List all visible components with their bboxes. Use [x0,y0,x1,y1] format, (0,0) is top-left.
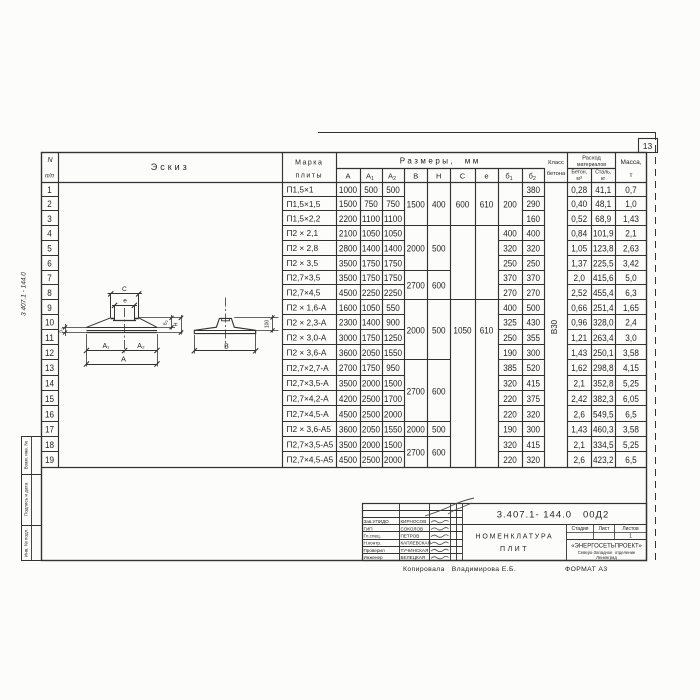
svg-text:15: 15 [45,394,54,404]
svg-text:2000: 2000 [384,409,402,419]
svg-text:123,8: 123,8 [593,244,614,254]
svg-text:1550: 1550 [384,348,402,358]
svg-text:2700: 2700 [407,281,425,291]
svg-text:2000: 2000 [362,379,380,389]
svg-text:11: 11 [45,333,54,343]
svg-text:220: 220 [503,455,517,465]
svg-text:6,3: 6,3 [625,288,636,298]
svg-text:Гл.спец.: Гл.спец. [364,534,381,539]
svg-text:320: 320 [526,409,540,419]
svg-text:325: 325 [503,318,517,328]
svg-text:П2,7×3,5: П2,7×3,5 [287,273,321,283]
svg-text:200: 200 [503,200,517,210]
svg-text:0,40: 0,40 [571,199,587,209]
svg-text:3600: 3600 [339,348,357,358]
svg-text:950: 950 [386,363,400,373]
svg-text:2800: 2800 [339,244,357,254]
svg-text:500: 500 [386,185,400,195]
svg-text:250,1: 250,1 [593,348,614,358]
svg-text:68,9: 68,9 [595,214,611,224]
svg-text:4500: 4500 [339,455,357,465]
svg-text:2,52: 2,52 [571,288,587,298]
svg-text:4: 4 [47,229,52,239]
svg-text:7: 7 [47,273,52,283]
svg-text:П2,7×3,5-А: П2,7×3,5-А [287,378,330,388]
svg-text:1750: 1750 [362,273,380,283]
svg-text:290: 290 [526,199,540,209]
svg-text:3600: 3600 [339,425,357,435]
svg-text:48,1: 48,1 [595,199,611,209]
svg-text:320: 320 [526,455,540,465]
svg-text:А: А [121,355,126,364]
svg-text:382,3: 382,3 [593,394,614,404]
svg-text:1500: 1500 [407,200,425,210]
svg-text:Ленинград: Ленинград [596,555,617,560]
svg-text:П2,7×4,2-А: П2,7×4,2-А [287,393,330,403]
svg-text:500: 500 [432,244,446,254]
svg-text:298,8: 298,8 [593,363,614,373]
svg-text:3.407.1- 144.0 00Д2: 3.407.1- 144.0 00Д2 [497,510,609,521]
svg-text:1: 1 [629,534,632,540]
svg-text:п/п: п/п [45,173,54,180]
svg-text:4500: 4500 [339,288,357,298]
svg-text:12: 12 [45,348,54,358]
svg-text:2000: 2000 [407,425,425,435]
svg-text:6,05: 6,05 [623,394,639,404]
svg-text:334,5: 334,5 [593,440,614,450]
svg-text:П2 × 3,6-А5: П2 × 3,6-А5 [287,424,332,434]
svg-text:1,65: 1,65 [623,303,639,313]
svg-text:ПЕТРОВ: ПЕТРОВ [401,534,420,539]
svg-text:430: 430 [526,318,540,328]
svg-text:400: 400 [526,229,540,239]
svg-text:2500: 2500 [362,455,380,465]
svg-text:2000: 2000 [384,455,402,465]
svg-text:2000: 2000 [407,244,425,254]
svg-text:Марка: Марка [295,160,323,167]
svg-text:600: 600 [432,386,446,396]
svg-text:600: 600 [432,448,446,458]
svg-text:1500: 1500 [339,199,357,209]
svg-text:1,62: 1,62 [571,363,587,373]
svg-text:1500: 1500 [384,440,402,450]
svg-text:2250: 2250 [384,288,402,298]
svg-text:П2 × 3,5: П2 × 3,5 [287,258,319,268]
svg-text:3,58: 3,58 [623,348,639,358]
svg-text:225,5: 225,5 [593,258,614,268]
svg-text:2100: 2100 [339,229,357,239]
svg-text:320: 320 [503,379,517,389]
svg-text:Инженер: Инженер [364,555,384,560]
svg-text:1100: 1100 [362,214,380,224]
svg-text:Лист: Лист [599,526,611,532]
svg-text:455,4: 455,4 [593,288,614,298]
svg-text:2,63: 2,63 [623,244,639,254]
svg-text:270: 270 [526,288,540,298]
svg-text:А₁: А₁ [102,343,110,350]
svg-text:ПЛИТ: ПЛИТ [500,546,529,553]
svg-text:8: 8 [47,288,52,298]
svg-text:ТУЧИНСКАЯ: ТУЧИНСКАЯ [401,548,429,553]
svg-text:2700: 2700 [339,363,357,373]
svg-text:2250: 2250 [362,288,380,298]
svg-text:190: 190 [503,348,517,358]
svg-text:1,05: 1,05 [571,244,587,254]
svg-text:т: т [630,172,633,179]
svg-text:3,58: 3,58 [623,425,639,435]
svg-text:16: 16 [45,409,54,419]
svg-text:С: С [460,172,466,181]
svg-text:П2 × 2,1: П2 × 2,1 [287,228,319,238]
svg-text:4500: 4500 [339,409,357,419]
svg-text:Расход: Расход [582,156,601,162]
svg-text:1: 1 [47,185,52,195]
svg-text:750: 750 [386,199,400,209]
svg-text:1750: 1750 [362,258,380,268]
svg-text:3500: 3500 [339,258,357,268]
svg-text:2,1: 2,1 [574,440,585,450]
svg-text:415,6: 415,6 [593,273,614,283]
svg-text:1750: 1750 [362,333,380,343]
svg-text:1700: 1700 [384,394,402,404]
svg-text:Копировала Владимирова Е.Б.: Копировала Владимирова Е.Б. [403,566,516,573]
svg-text:3: 3 [47,214,52,224]
svg-text:1250: 1250 [384,333,402,343]
svg-text:220: 220 [503,394,517,404]
svg-text:Н.контр.: Н.контр. [364,541,382,546]
svg-text:Зав.УПИДО: Зав.УПИДО [364,519,390,524]
svg-text:П2,7×4,5: П2,7×4,5 [287,288,321,298]
svg-text:0,84: 0,84 [571,229,587,239]
svg-text:2500: 2500 [362,409,380,419]
svg-text:900: 900 [386,318,400,328]
svg-text:250: 250 [503,258,517,268]
svg-text:материалов: материалов [577,162,606,168]
svg-text:В: В [413,172,418,181]
svg-text:300: 300 [526,348,540,358]
svg-text:П2,7×4,5-А5: П2,7×4,5-А5 [287,455,334,465]
svg-text:1,37: 1,37 [571,258,587,268]
svg-text:1600: 1600 [339,303,357,313]
svg-text:10: 10 [45,318,54,328]
svg-text:2: 2 [47,199,52,209]
svg-text:е: е [123,298,127,305]
svg-text:4200: 4200 [339,394,357,404]
svg-text:460,3: 460,3 [593,425,614,435]
svg-text:С: С [122,286,127,293]
svg-text:В: В [224,343,229,350]
svg-text:250: 250 [526,258,540,268]
svg-text:ФОРМАТ А3: ФОРМАТ А3 [565,566,608,573]
svg-text:13: 13 [45,363,54,373]
svg-text:1400: 1400 [384,244,402,254]
svg-text:415: 415 [526,440,540,450]
svg-text:423,2: 423,2 [593,455,614,465]
svg-text:Н: Н [174,322,180,326]
svg-text:250: 250 [503,333,517,343]
svg-text:П2 × 1,6-А: П2 × 1,6-А [287,302,327,312]
svg-text:П2,7×2,7-А: П2,7×2,7-А [287,363,330,373]
svg-text:П2,7×4,5-А: П2,7×4,5-А [287,409,330,419]
svg-text:5: 5 [47,244,52,254]
svg-text:«ЭНЕРГОСЕТЬПРОЕКТ»: «ЭНЕРГОСЕТЬПРОЕКТ» [571,544,642,550]
svg-text:100: 100 [264,320,270,329]
svg-text:2,0: 2,0 [574,273,585,283]
svg-text:1050: 1050 [384,229,402,239]
svg-text:263,4: 263,4 [593,333,614,343]
svg-text:1750: 1750 [384,273,402,283]
svg-text:1500: 1500 [384,379,402,389]
svg-text:6,5: 6,5 [625,409,636,419]
svg-text:400: 400 [503,303,517,313]
svg-text:ГИП: ГИП [364,526,373,531]
svg-text:415: 415 [526,379,540,389]
svg-text:3000: 3000 [339,333,357,343]
svg-text:Размеры, мм: Размеры, мм [400,157,481,166]
svg-text:1750: 1750 [362,363,380,373]
svg-text:2,6: 2,6 [574,409,585,419]
svg-text:НОМЕНКЛАТУРА: НОМЕНКЛАТУРА [475,534,553,541]
svg-text:Н: Н [436,172,441,181]
svg-text:3,42: 3,42 [623,258,639,268]
svg-text:2,4: 2,4 [625,318,636,328]
svg-text:Подпись и дата: Подпись и дата [24,483,29,516]
svg-text:П2 × 2,3-А: П2 × 2,3-А [287,317,327,327]
svg-text:1750: 1750 [384,258,402,268]
svg-text:520: 520 [526,363,540,373]
svg-text:160: 160 [526,214,540,224]
svg-text:Проверил: Проверил [364,548,385,553]
svg-text:БЕЛЕЦКАЯ: БЕЛЕЦКАЯ [401,555,426,560]
svg-text:1050: 1050 [453,326,471,336]
svg-text:КАПЛЕВСКАЯ: КАПЛЕВСКАЯ [401,541,431,546]
svg-text:2000: 2000 [407,326,425,336]
svg-text:1000: 1000 [339,185,357,195]
svg-text:Масса,: Масса, [620,159,641,166]
svg-text:2,6: 2,6 [574,455,585,465]
svg-text:5,0: 5,0 [625,273,636,283]
svg-text:0,52: 0,52 [571,214,587,224]
svg-text:1400: 1400 [362,318,380,328]
svg-text:2700: 2700 [407,386,425,396]
svg-text:41,1: 41,1 [595,185,611,195]
svg-text:500: 500 [432,326,446,336]
svg-text:6: 6 [47,258,52,268]
svg-text:2050: 2050 [362,425,380,435]
svg-text:Эскиз: Эскиз [151,162,190,172]
svg-text:550: 550 [386,303,400,313]
svg-text:190: 190 [503,425,517,435]
svg-text:1050: 1050 [362,229,380,239]
svg-text:3,0: 3,0 [625,333,636,343]
svg-text:2500: 2500 [362,394,380,404]
svg-text:А: А [345,172,350,181]
svg-text:3500: 3500 [339,273,357,283]
svg-text:220: 220 [503,409,517,419]
svg-text:КИРНОСОВ: КИРНОСОВ [401,519,427,524]
svg-text:1,43: 1,43 [571,425,587,435]
svg-text:270: 270 [503,288,517,298]
svg-text:17: 17 [45,425,54,435]
svg-text:1,43: 1,43 [571,348,587,358]
svg-text:13: 13 [643,141,653,151]
svg-text:П2 × 2,8: П2 × 2,8 [287,243,319,253]
svg-text:600: 600 [456,200,470,210]
svg-text:2,1: 2,1 [625,229,636,239]
svg-text:2000: 2000 [362,440,380,450]
svg-text:1,0: 1,0 [625,199,636,209]
svg-text:610: 610 [480,326,494,336]
svg-text:2,42: 2,42 [571,394,587,404]
svg-text:1550: 1550 [384,425,402,435]
svg-text:320: 320 [503,244,517,254]
svg-text:400: 400 [432,200,446,210]
svg-text:500: 500 [364,185,378,195]
svg-text:4,15: 4,15 [623,363,639,373]
svg-text:е: е [484,172,488,181]
svg-text:П2 × 3,6-А: П2 × 3,6-А [287,348,327,358]
svg-text:1,21: 1,21 [571,333,587,343]
svg-text:600: 600 [432,281,446,291]
svg-text:400: 400 [503,229,517,239]
svg-text:Взам. инв. №: Взам. инв. № [24,441,29,470]
svg-text:0,96: 0,96 [571,318,587,328]
svg-text:19: 19 [45,455,54,465]
svg-text:Листов: Листов [622,526,639,532]
svg-text:П2,7×3,5-А5: П2,7×3,5-А5 [287,439,334,449]
svg-text:355: 355 [526,333,540,343]
svg-text:750: 750 [364,199,378,209]
svg-text:2300: 2300 [339,318,357,328]
svg-text:3500: 3500 [339,440,357,450]
svg-text:101,9: 101,9 [593,229,614,239]
svg-text:251,4: 251,4 [593,303,614,313]
svg-text:А₂: А₂ [137,343,145,350]
svg-text:375: 375 [526,394,540,404]
svg-text:320: 320 [503,440,517,450]
svg-text:3500: 3500 [339,379,357,389]
svg-text:П1,5×1,5: П1,5×1,5 [287,199,321,209]
svg-text:2,1: 2,1 [574,379,585,389]
svg-text:380: 380 [526,185,540,195]
svg-text:500: 500 [526,303,540,313]
svg-text:549,5: 549,5 [593,409,614,419]
svg-text:0,28: 0,28 [571,185,587,195]
svg-text:Класс: Класс [548,160,564,166]
svg-text:300: 300 [526,425,540,435]
svg-text:3 407.1 - 144.0: 3 407.1 - 144.0 [21,272,28,316]
svg-text:1050: 1050 [362,303,380,313]
svg-text:18: 18 [45,440,54,450]
svg-text:плиты: плиты [295,173,323,180]
svg-text:5,25: 5,25 [623,379,639,389]
svg-text:бетона: бетона [547,171,566,177]
svg-text:320: 320 [526,244,540,254]
svg-text:кг: кг [601,176,605,182]
svg-text:370: 370 [503,273,517,283]
svg-text:385: 385 [503,363,517,373]
svg-text:352,8: 352,8 [593,379,614,389]
svg-text:610: 610 [480,200,494,210]
svg-text:1,43: 1,43 [623,214,639,224]
svg-text:П1,5×2,2: П1,5×2,2 [287,213,321,223]
svg-text:Сталь,: Сталь, [595,170,611,176]
svg-text:2200: 2200 [339,214,357,224]
svg-text:СОКОЛОВ: СОКОЛОВ [401,526,424,531]
svg-text:В30: В30 [550,319,559,334]
svg-text:14: 14 [45,379,54,389]
svg-text:0,7: 0,7 [625,185,636,195]
svg-text:Инв. № подл.: Инв. № подл. [24,528,29,557]
svg-text:370: 370 [526,273,540,283]
svg-text:Стадия: Стадия [571,526,588,532]
svg-text:1400: 1400 [362,244,380,254]
svg-text:П2 × 3,0-А: П2 × 3,0-А [287,332,327,342]
svg-text:6,5: 6,5 [625,455,636,465]
svg-text:2050: 2050 [362,348,380,358]
svg-text:328,0: 328,0 [593,318,614,328]
svg-text:500: 500 [432,425,446,435]
svg-text:2700: 2700 [407,448,425,458]
svg-text:0,66: 0,66 [571,303,587,313]
svg-text:9: 9 [47,303,52,313]
svg-text:П1,5×1: П1,5×1 [287,184,314,194]
svg-text:5,25: 5,25 [623,440,639,450]
svg-text:1100: 1100 [384,214,402,224]
